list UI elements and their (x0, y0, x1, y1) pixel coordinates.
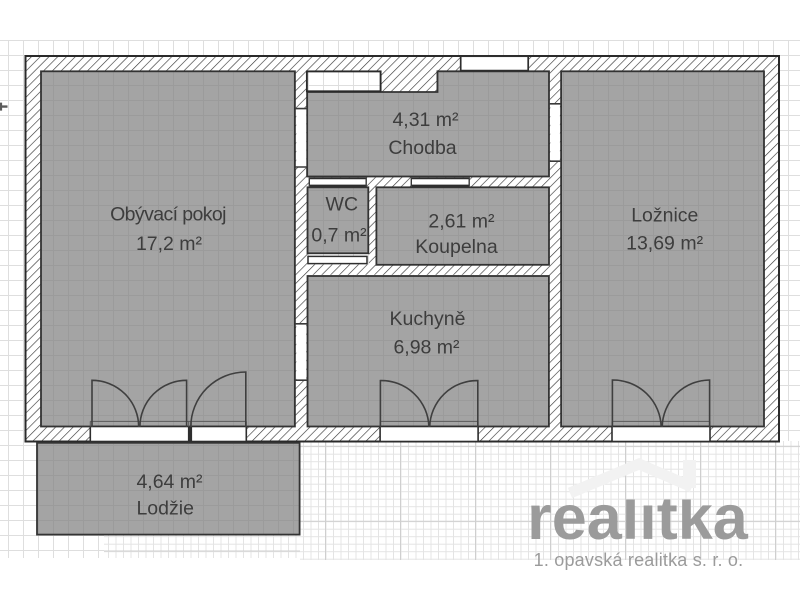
svg-text:Lodžie: Lodžie (136, 498, 193, 520)
svg-text:Chodba: Chodba (388, 137, 456, 159)
svg-text:13,69 m²: 13,69 m² (626, 232, 703, 254)
svg-text:Obývací pokoj: Obývací pokoj (110, 203, 226, 225)
svg-text:2,61 m²: 2,61 m² (428, 210, 495, 232)
svg-text:6,98 m²: 6,98 m² (393, 336, 460, 358)
svg-text:17,2 m²: 17,2 m² (136, 233, 203, 255)
svg-text:4,31 m²: 4,31 m² (392, 109, 459, 131)
svg-text:Koupelna: Koupelna (415, 236, 498, 258)
svg-text:Ložnice: Ložnice (631, 205, 698, 227)
svg-text:0,7 m²: 0,7 m² (311, 224, 367, 246)
svg-text:WC: WC (326, 194, 359, 216)
svg-text:4,64 m²: 4,64 m² (136, 471, 203, 493)
svg-text:Kuchyně: Kuchyně (390, 308, 466, 330)
svg-text:1. opavská realitka s. r. o.: 1. opavská realitka s. r. o. (534, 550, 744, 570)
